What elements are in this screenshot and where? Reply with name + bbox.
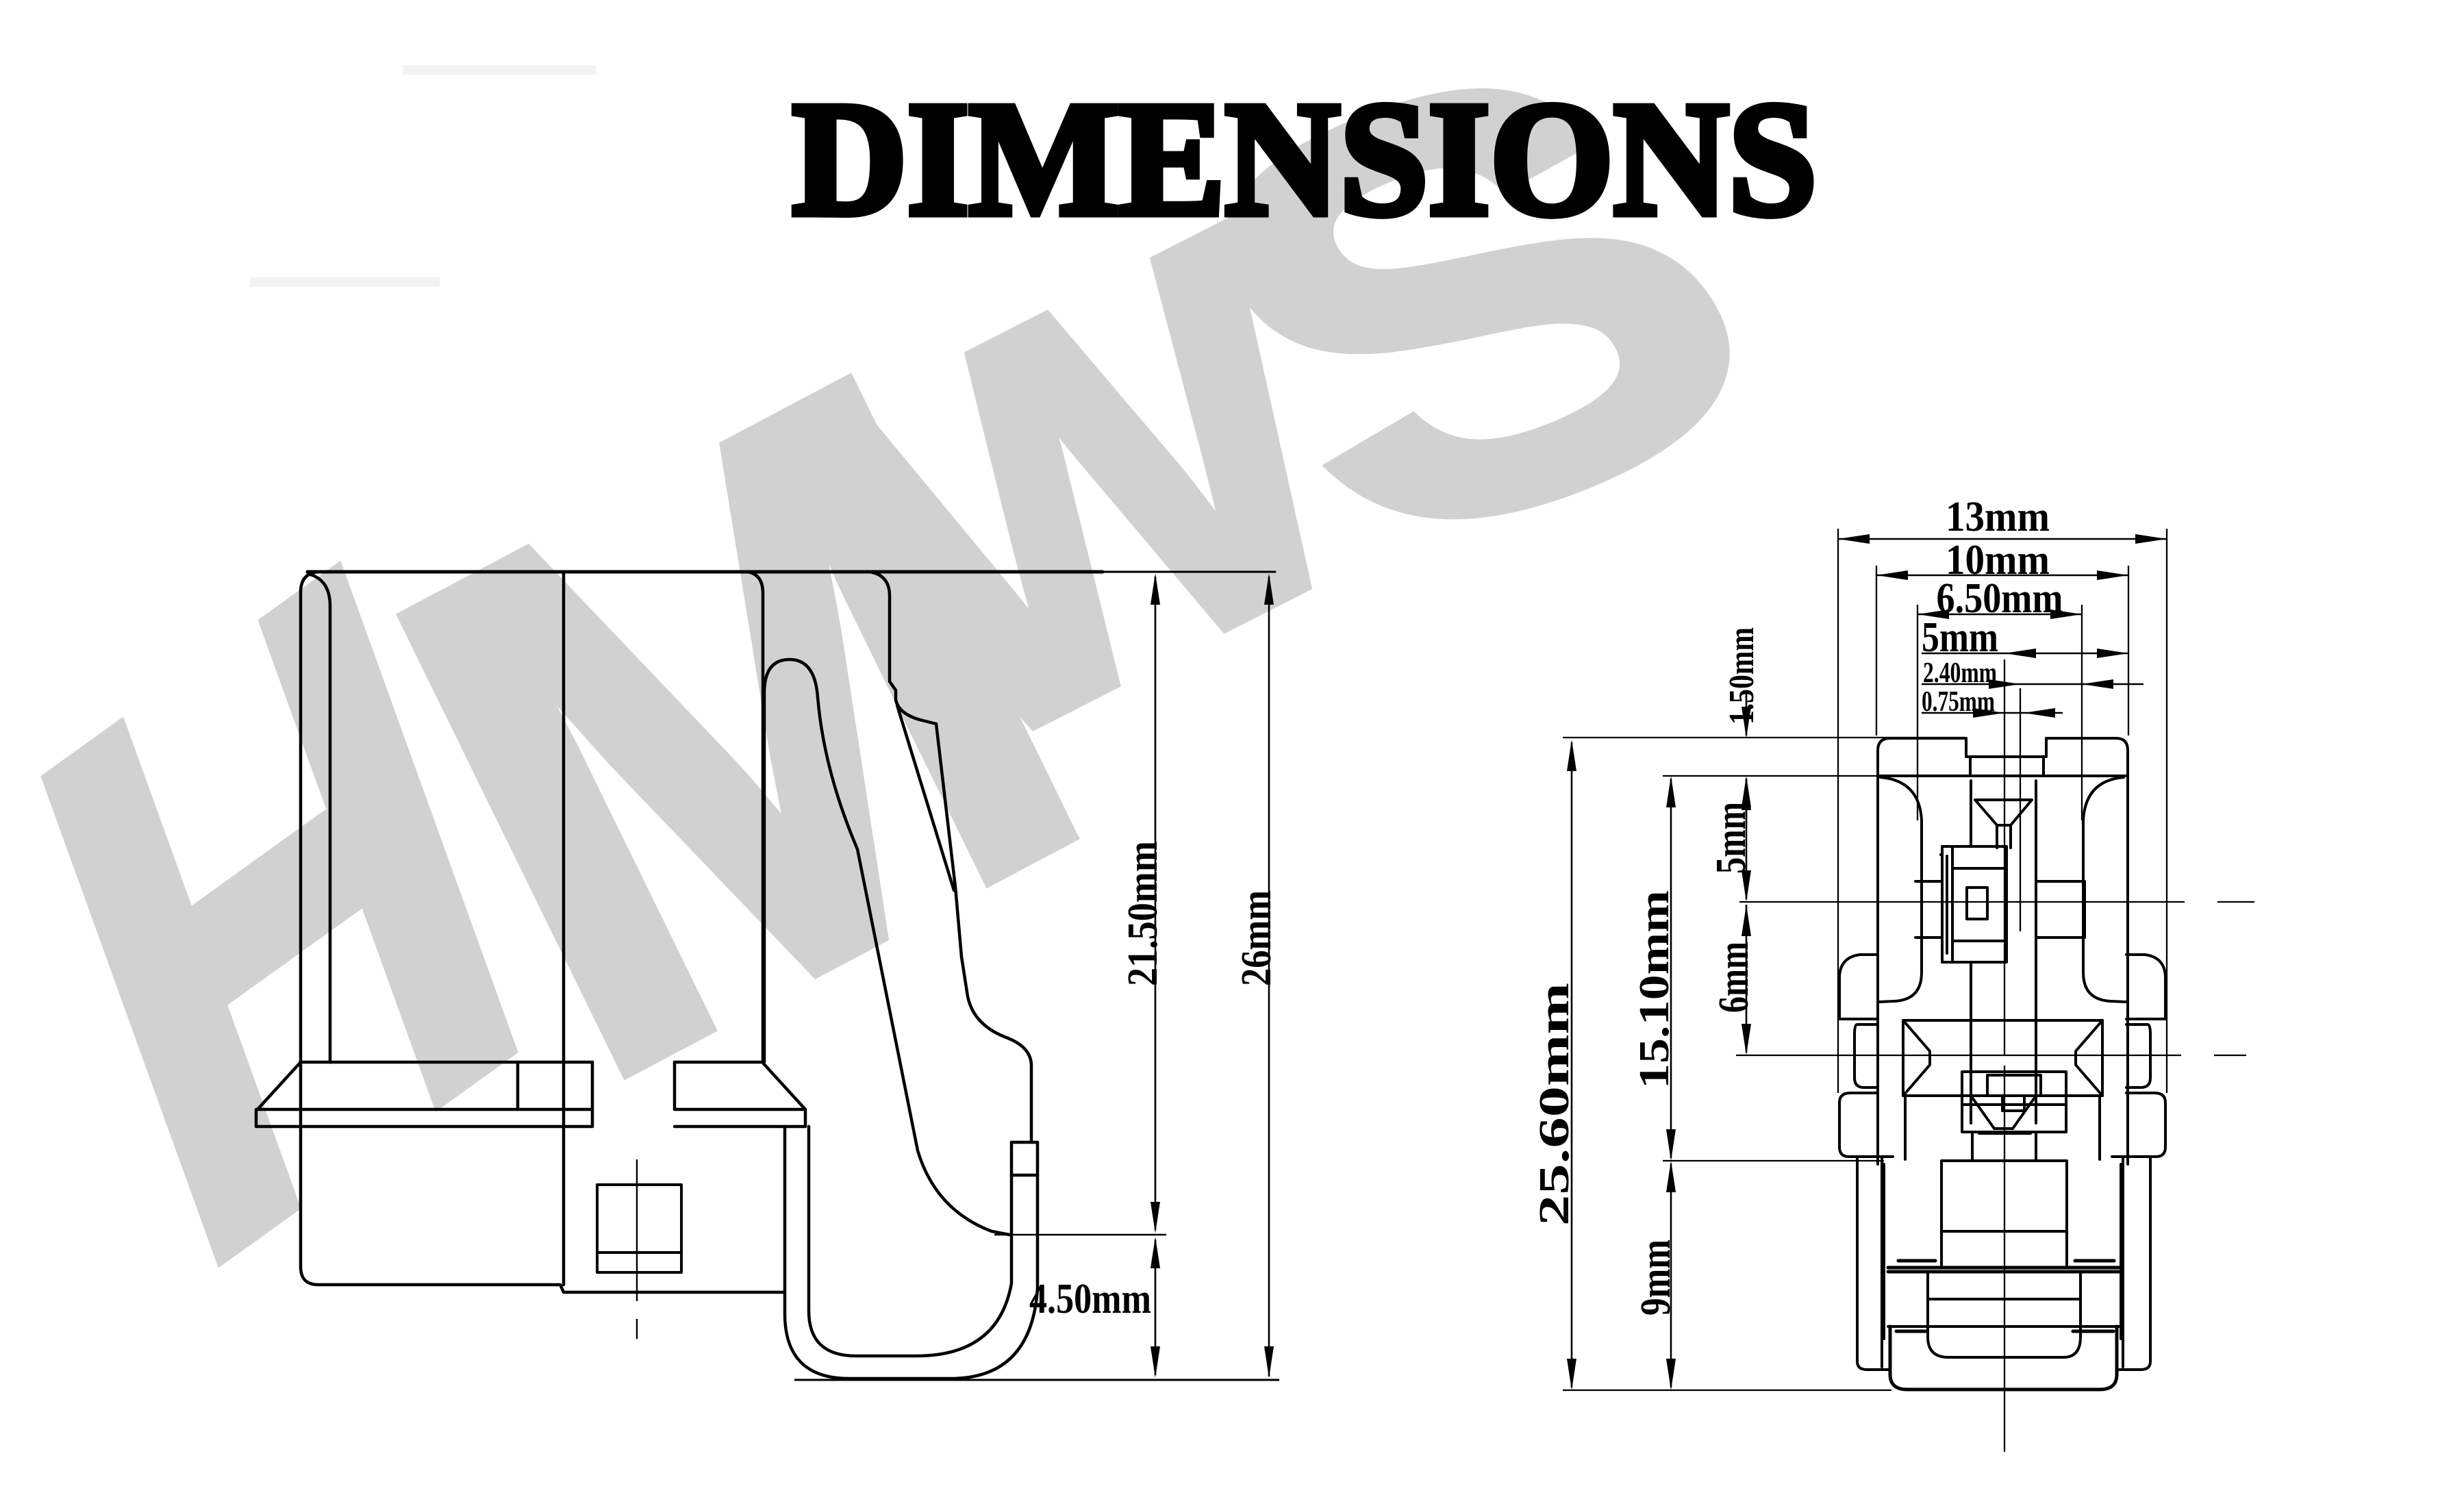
svg-text:5mm: 5mm	[1708, 802, 1755, 874]
svg-text:1.50mm: 1.50mm	[1722, 627, 1761, 725]
svg-text:21.50mm: 21.50mm	[1120, 841, 1166, 986]
svg-text:5mm: 5mm	[1922, 614, 1998, 661]
svg-text:26mm: 26mm	[1233, 890, 1280, 986]
svg-text:13mm: 13mm	[1946, 494, 2050, 540]
svg-text:15.10mm: 15.10mm	[1631, 890, 1678, 1089]
svg-text:9mm: 9mm	[1633, 1240, 1679, 1316]
svg-text:2.40mm: 2.40mm	[1923, 657, 1997, 689]
svg-text:4.50mm: 4.50mm	[1029, 1276, 1151, 1322]
svg-text:6mm: 6mm	[1711, 942, 1757, 1013]
svg-text:25.60mm: 25.60mm	[1531, 983, 1578, 1226]
svg-text:DIMENSIONS: DIMENSIONS	[792, 69, 1817, 249]
svg-text:0.75mm: 0.75mm	[1922, 686, 1995, 718]
